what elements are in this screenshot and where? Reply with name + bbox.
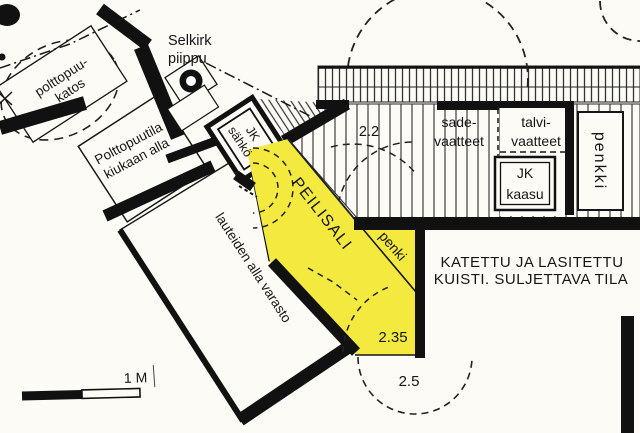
boardwalk-strip — [318, 66, 640, 102]
dim-deck-width: 2.2 — [359, 124, 379, 140]
porch-label-2: KUISTI. SULJETTAVA TILA — [434, 271, 629, 288]
bench-right-label: penkki — [591, 132, 608, 190]
scale-label: 1 M — [124, 369, 148, 386]
winter-clothes-label-2: vaatteet — [511, 133, 561, 149]
rain-clothes-label-2: vaatteet — [434, 133, 484, 149]
dim-hall-width: 2.35 — [378, 329, 407, 346]
jk-gas-label-2: kaasu — [506, 186, 543, 202]
chimney-label-2: piippu — [168, 51, 207, 67]
porch-label-1: KATETTU JA LASITETTU — [440, 254, 623, 271]
rain-clothes-label-1: sade- — [441, 114, 476, 130]
winter-clothes-label-1: talvi- — [521, 114, 551, 130]
jk-gas-label-1: JK — [517, 165, 534, 181]
chimney-label-1: Selkirk — [168, 33, 212, 49]
dim-door-swing: 2.5 — [399, 373, 420, 390]
floor-plan-drawing: 1 M Selkirk piippu polttopuu- katos Polt… — [0, 0, 640, 433]
floor-plan-page: 1 M Selkirk piippu polttopuu- katos Polt… — [0, 0, 640, 433]
